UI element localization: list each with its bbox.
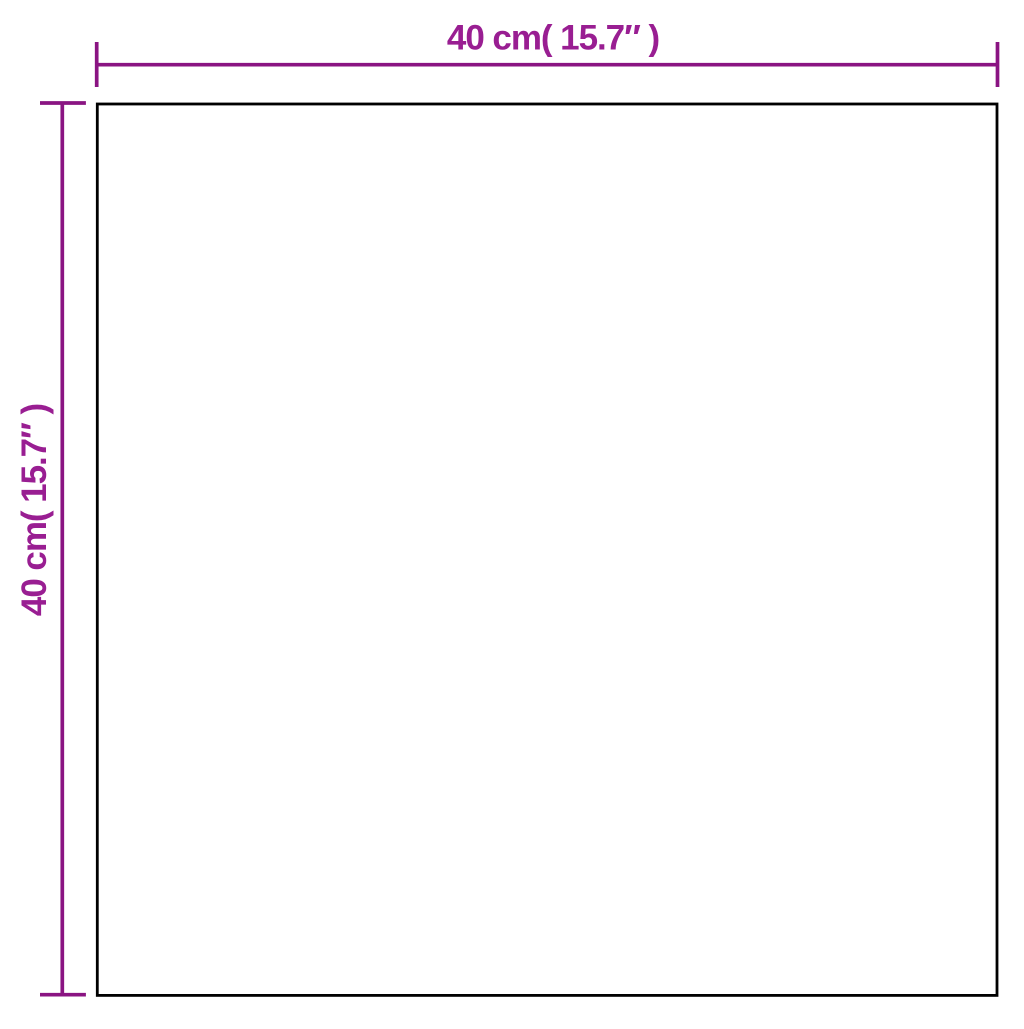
svg-text:40 cm( 15.7″ ): 40 cm( 15.7″ ) — [15, 404, 54, 616]
svg-text:40 cm( 15.7″ ): 40 cm( 15.7″ ) — [447, 19, 659, 58]
